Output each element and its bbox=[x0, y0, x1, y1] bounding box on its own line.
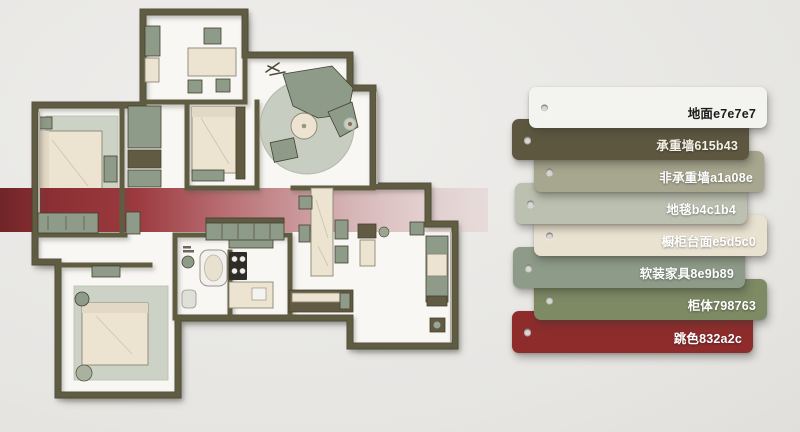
punch-hole-icon bbox=[524, 136, 531, 143]
palette-card-label: 地毯b4c1b4 bbox=[666, 199, 736, 218]
palette-card-label: 柜体798763 bbox=[688, 295, 756, 314]
palette-card-label: 地面e7e7e7 bbox=[688, 103, 756, 122]
palette-card-label: 跳色832a2c bbox=[674, 328, 742, 347]
palette-card-floor: 地面e7e7e7 bbox=[529, 87, 767, 128]
punch-hole-icon bbox=[525, 264, 532, 271]
palette-card-label: 软装家具8e9b89 bbox=[640, 263, 734, 282]
punch-hole-icon bbox=[541, 104, 548, 111]
palette-card-label: 橱柜台面e5d5c0 bbox=[662, 231, 756, 250]
palette-card-label: 非承重墙a1a08e bbox=[659, 167, 753, 186]
punch-hole-icon bbox=[546, 232, 553, 239]
punch-hole-icon bbox=[546, 168, 553, 175]
color-scheme-board: 地面e7e7e7 承重墙615b43 非承重墙a1a08e 地毯b4c1b4 橱… bbox=[0, 0, 800, 432]
punch-hole-icon bbox=[524, 329, 531, 336]
punch-hole-icon bbox=[527, 200, 534, 207]
palette-card-label: 承重墙615b43 bbox=[656, 135, 738, 154]
island-cabinets bbox=[206, 218, 284, 240]
bedroom-middle bbox=[192, 107, 245, 181]
punch-hole-icon bbox=[546, 296, 553, 303]
